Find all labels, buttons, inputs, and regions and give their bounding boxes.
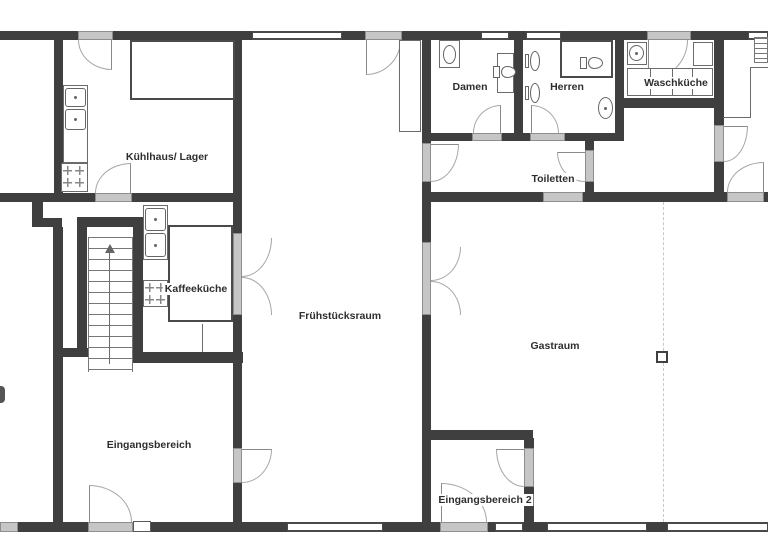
wall-segment (18, 522, 88, 532)
door-sill (95, 193, 132, 202)
window-symbol (547, 522, 647, 532)
window-symbol (481, 31, 509, 40)
wall-segment (488, 522, 495, 532)
wall-segment (402, 31, 481, 40)
wall-segment (502, 133, 530, 141)
window-symbol (287, 522, 383, 532)
floor-plan: Kühlhaus/ Lager Kaffeeküche Frühstücksra… (0, 0, 768, 560)
wall-segment (0, 193, 95, 202)
door-sill (543, 192, 583, 202)
room-label-toiletten: Toiletten (530, 173, 577, 185)
wall-segment (714, 162, 724, 192)
stove-burner-icon (145, 283, 154, 292)
window-symbol (667, 522, 768, 532)
wall-segment (423, 430, 533, 440)
door-sill (233, 448, 242, 483)
wall-segment (133, 352, 243, 363)
appliance-icon (145, 233, 166, 257)
room-label-waschkueche: Waschküche (642, 77, 710, 89)
door-swing-arc (242, 277, 272, 315)
wall-segment (422, 182, 431, 242)
door-swing-arc (242, 238, 272, 277)
wall-segment (523, 522, 547, 532)
stove-burner-icon (75, 166, 84, 175)
door-swing-arc (431, 281, 461, 315)
wall-segment (565, 133, 624, 141)
door-sill (0, 522, 18, 532)
door-sill (647, 31, 691, 40)
staircase (754, 37, 768, 63)
wall-segment (691, 31, 748, 40)
sink-basin (443, 45, 456, 64)
wall-segment (561, 31, 647, 40)
appliance-icon (65, 109, 86, 130)
appliance-icon (65, 88, 86, 107)
wall-segment (233, 483, 242, 522)
door-sill (365, 31, 402, 40)
cold-room-box (130, 40, 235, 100)
wall-segment (430, 192, 543, 202)
door-swing-arc (473, 105, 501, 133)
stove-burner-icon (63, 166, 72, 175)
stair-hall-line (750, 67, 751, 118)
window-symbol (252, 31, 342, 40)
wall-segment (514, 40, 523, 133)
staircase (88, 237, 133, 372)
toilet-icon (493, 65, 517, 79)
room-label-eingangsbereich: Eingangsbereich (105, 439, 194, 451)
wall-segment (32, 218, 62, 227)
edge-fragment (0, 386, 5, 403)
door-swing-arc (95, 163, 131, 193)
door-sill (422, 143, 431, 182)
door-swing-arc (496, 449, 524, 487)
wall-segment (509, 31, 526, 40)
room-label-damen: Damen (450, 81, 489, 93)
wall-segment (151, 522, 287, 532)
door-swing-arc (242, 449, 272, 483)
urinal-icon (525, 50, 541, 72)
urinal-icon (525, 82, 541, 104)
stair-arrow (109, 252, 110, 364)
room-label-herren: Herren (548, 81, 586, 93)
wall-segment (583, 192, 727, 202)
door-swing-arc (431, 144, 459, 182)
window-symbol (495, 522, 523, 532)
door-sill (727, 192, 764, 202)
stove-burner-icon (145, 295, 154, 304)
wall-segment (764, 192, 768, 202)
cupboard (399, 40, 421, 132)
wall-segment (647, 522, 667, 532)
wall-segment (113, 31, 252, 40)
wall-segment (383, 522, 440, 532)
door-sill (440, 522, 488, 532)
wall-segment (585, 182, 594, 192)
door-sill (422, 242, 431, 315)
window-symbol (526, 31, 561, 40)
door-sill (524, 448, 534, 487)
wall-segment (422, 133, 472, 141)
door-sill (78, 31, 113, 40)
room-label-gastraum: Gastraum (528, 340, 581, 352)
counter-divider-line (202, 324, 203, 352)
door-swing-arc (431, 247, 461, 281)
door-sill (88, 522, 133, 532)
stair-arrow-head (105, 244, 115, 253)
door-swing-arc (366, 40, 401, 75)
door-swing-arc (727, 162, 764, 192)
wall-segment (133, 217, 143, 363)
wall-segment (422, 315, 431, 522)
door-swing-arc (78, 40, 112, 70)
room-label-eingangsbereich2: Eingangsbereich 2 (436, 494, 533, 506)
wall-segment (342, 31, 365, 40)
wall-segment (132, 193, 242, 202)
wall-segment (615, 40, 624, 141)
appliance-icon (693, 42, 713, 66)
stair-hall-line (750, 67, 768, 68)
door-swing-arc (531, 105, 559, 133)
wall-segment (422, 40, 431, 143)
door-sill (585, 150, 594, 182)
door-sill (472, 133, 502, 141)
room-label-fruehstuecksraum: Frühstücksraum (297, 310, 383, 322)
appliance-icon (145, 208, 166, 231)
wall-segment (0, 31, 78, 40)
wall-segment (624, 98, 723, 108)
stove-burner-icon (63, 178, 72, 187)
stove-burner-icon (156, 295, 165, 304)
work-table (168, 225, 233, 322)
pillar (656, 351, 668, 363)
washing-machine-dot (635, 52, 638, 55)
stair-hall-line (723, 117, 751, 118)
wall-segment (714, 40, 724, 125)
room-label-kuehlhaus: Kühlhaus/ Lager (124, 151, 210, 163)
wall-segment (53, 227, 63, 522)
toilet-icon (580, 56, 604, 70)
sink-drain (604, 107, 607, 110)
wall-segment (233, 315, 242, 448)
window-symbol (133, 521, 151, 532)
room-label-kaffeekueche: Kaffeeküche (163, 283, 229, 295)
door-sill (530, 133, 565, 141)
door-swing-arc (724, 126, 748, 162)
door-sill (714, 125, 724, 162)
stove-burner-icon (75, 178, 84, 187)
wall-segment (585, 141, 594, 150)
door-swing-arc (89, 485, 132, 522)
door-sill (233, 233, 242, 315)
wall-segment (77, 217, 87, 357)
